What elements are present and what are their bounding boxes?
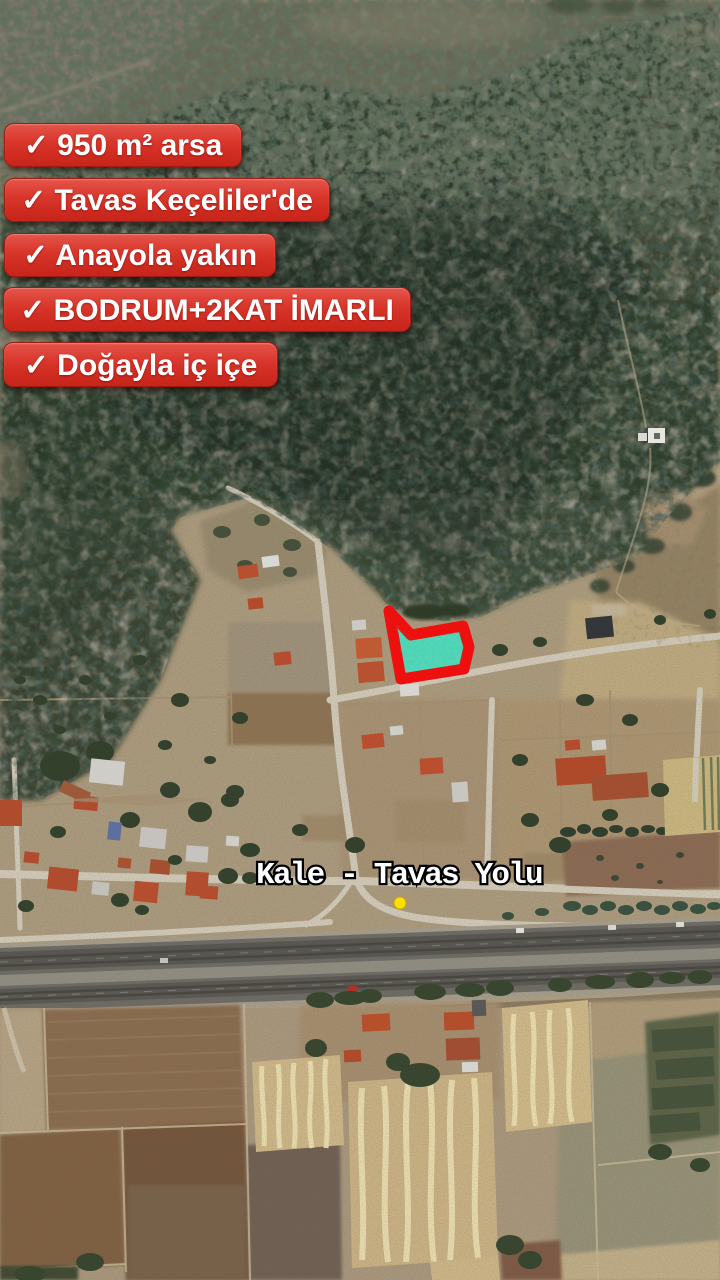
svg-text:Kale - Tavas Yolu: Kale - Tavas Yolu xyxy=(256,858,542,893)
